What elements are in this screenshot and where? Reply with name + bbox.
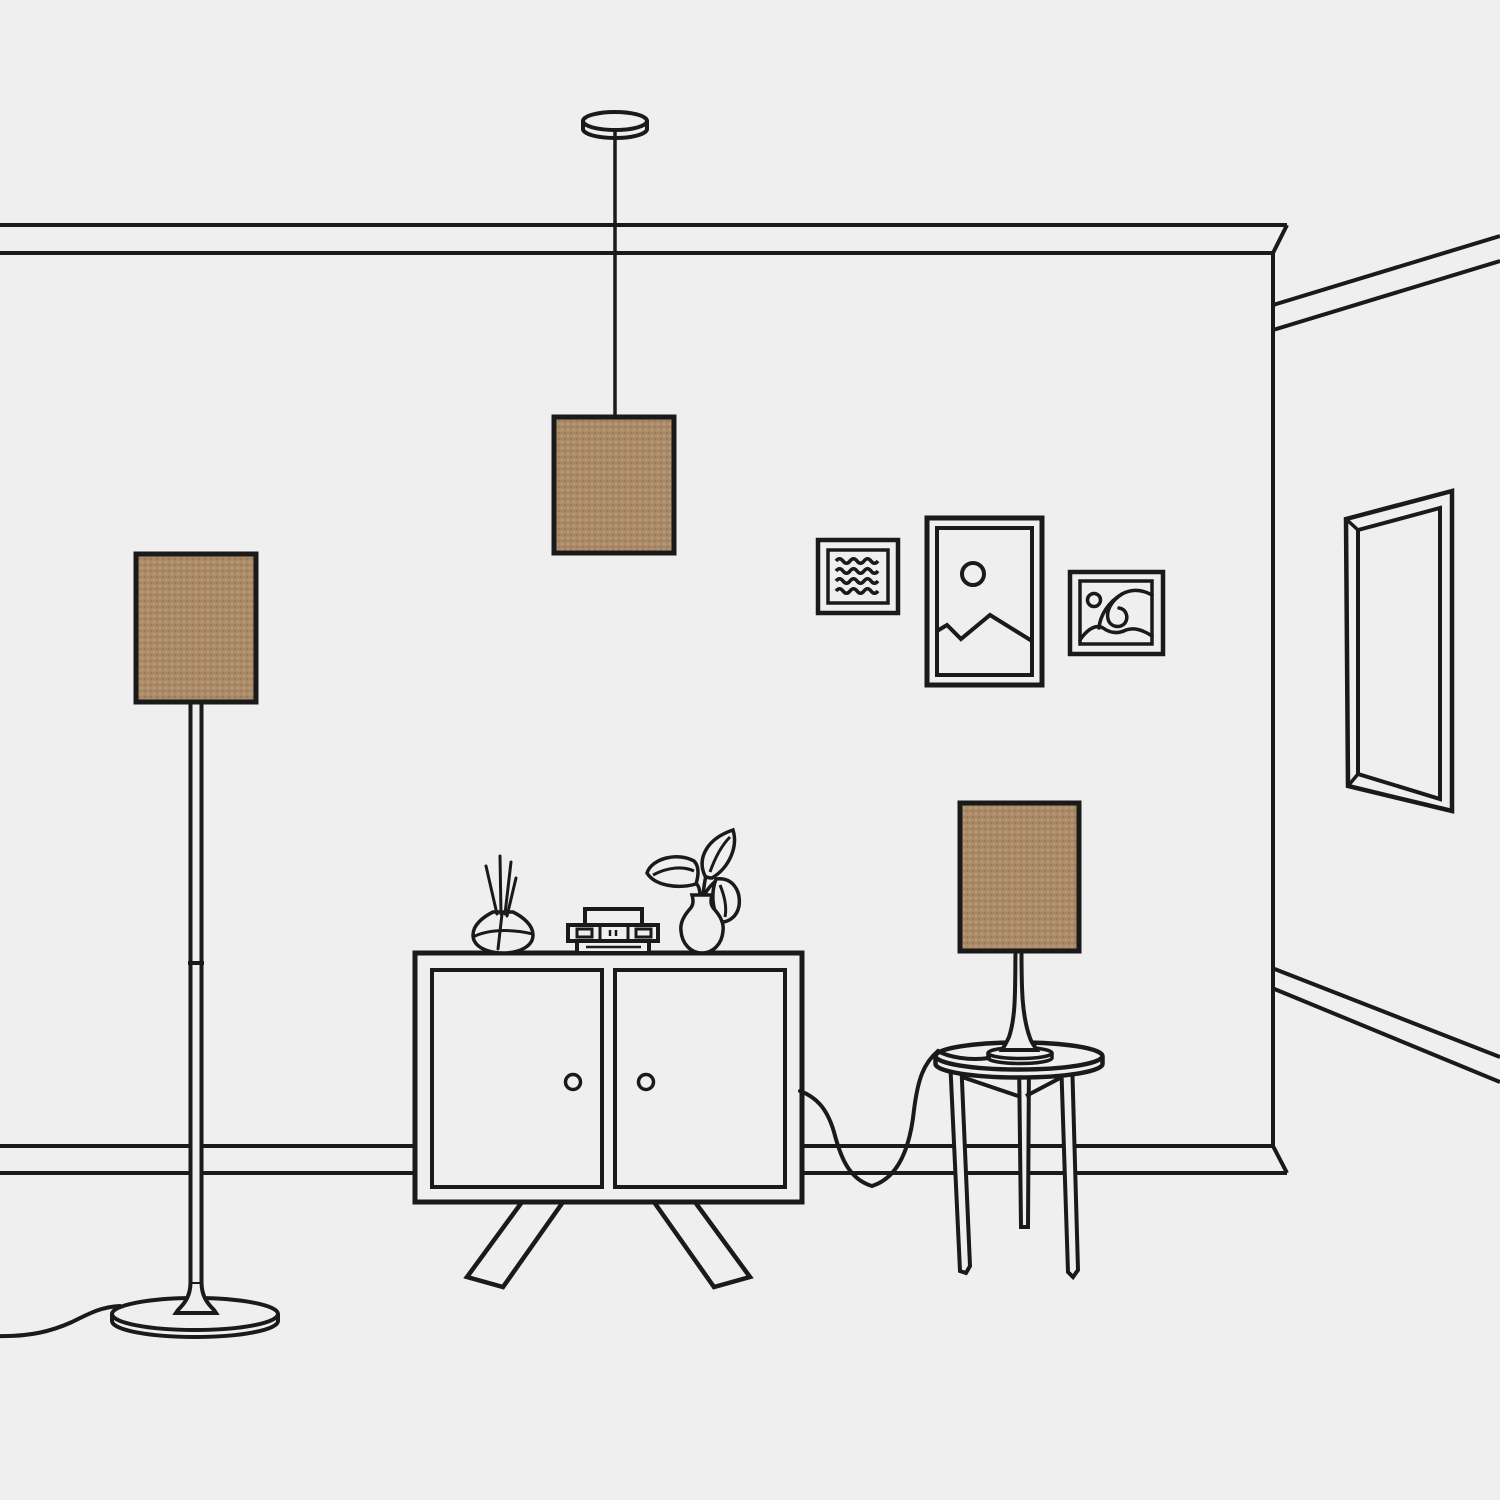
cabinet-body <box>415 953 802 1202</box>
book-stack-top <box>585 909 642 925</box>
side-table-leg-middle <box>1019 1058 1029 1227</box>
illustration-stage <box>0 0 1500 1500</box>
frame-mountain-outer <box>927 518 1042 685</box>
frame-mountain <box>927 518 1042 685</box>
pendant-shade <box>554 417 674 553</box>
mirror-outer-frame <box>1346 491 1452 811</box>
pendant-canopy <box>583 112 647 130</box>
cabinet-knob-right <box>639 1075 654 1090</box>
mirror <box>1346 491 1452 811</box>
book-stack-middle <box>568 925 658 941</box>
frame-sea <box>1070 572 1163 654</box>
room-illustration <box>0 0 1500 1500</box>
floor-lamp-shade <box>136 554 256 702</box>
cabinet-knob-left <box>566 1075 581 1090</box>
frame-sea-outer <box>1070 572 1163 654</box>
frame-waves <box>818 540 898 613</box>
table-lamp-shade <box>960 803 1079 951</box>
plant-leaf-left <box>647 857 698 887</box>
